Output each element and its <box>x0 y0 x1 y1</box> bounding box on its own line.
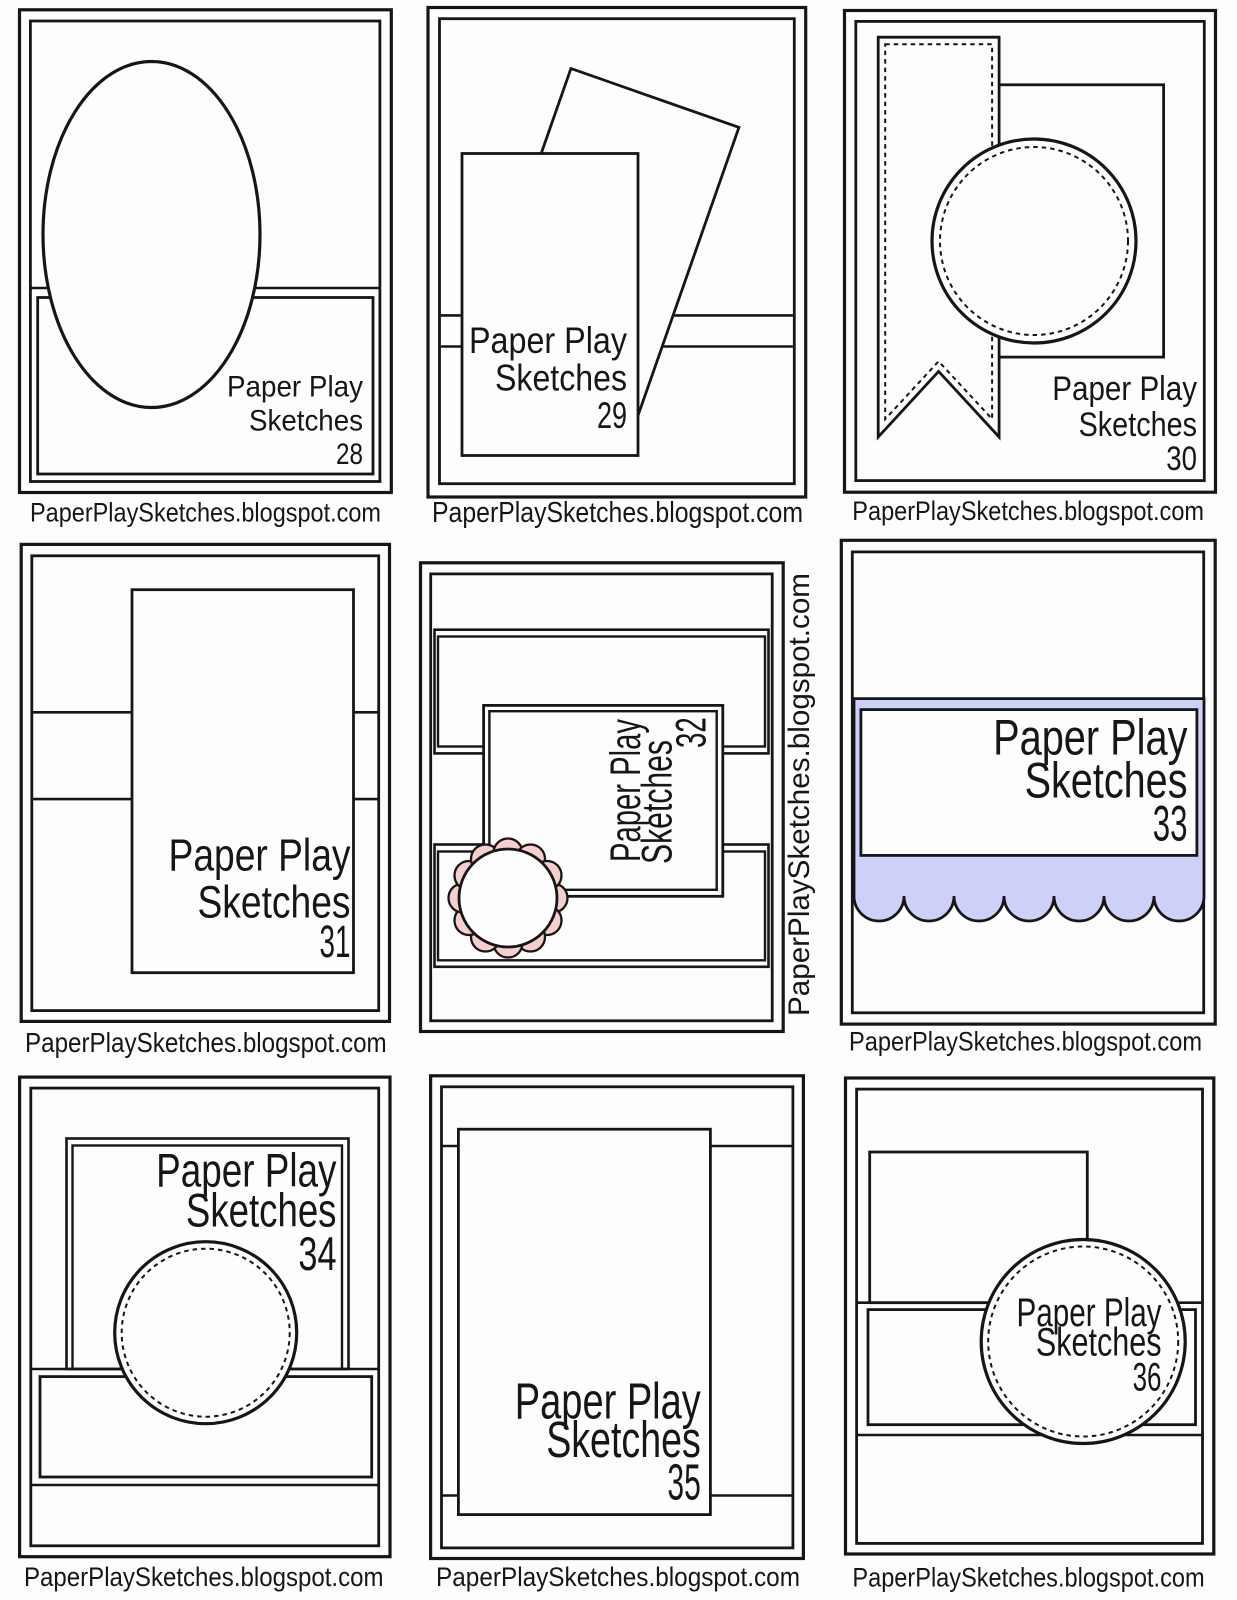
svg-text:28: 28 <box>336 438 363 471</box>
svg-text:PaperPlaySketches.blogspot.com: PaperPlaySketches.blogspot.com <box>24 1562 384 1592</box>
svg-text:31: 31 <box>320 916 351 967</box>
svg-text:PaperPlaySketches.blogspot.com: PaperPlaySketches.blogspot.com <box>852 496 1204 526</box>
svg-text:Paper Play: Paper Play <box>227 371 363 404</box>
svg-text:Sketches: Sketches <box>495 358 627 399</box>
svg-text:PaperPlaySketches.blogspot.com: PaperPlaySketches.blogspot.com <box>852 1563 1204 1593</box>
svg-text:30: 30 <box>1166 440 1197 478</box>
svg-text:Paper Play: Paper Play <box>1052 370 1197 408</box>
svg-text:PaperPlaySketches.blogspot.com: PaperPlaySketches.blogspot.com <box>849 1027 1202 1057</box>
svg-text:36: 36 <box>1133 1356 1162 1400</box>
svg-text:PaperPlaySketches.blogspot.com: PaperPlaySketches.blogspot.com <box>436 1562 800 1592</box>
svg-text:34: 34 <box>298 1227 336 1280</box>
svg-text:PaperPlaySketches.blogspot.com: PaperPlaySketches.blogspot.com <box>432 497 803 529</box>
svg-text:PaperPlaySketches.blogspot.com: PaperPlaySketches.blogspot.com <box>783 573 816 1016</box>
svg-text:32: 32 <box>668 717 716 748</box>
svg-text:Sketches: Sketches <box>1079 406 1197 444</box>
svg-text:33: 33 <box>1153 796 1188 852</box>
svg-text:35: 35 <box>667 1453 700 1510</box>
svg-text:Paper Play: Paper Play <box>469 320 628 361</box>
svg-text:PaperPlaySketches.blogspot.com: PaperPlaySketches.blogspot.com <box>25 1027 387 1058</box>
svg-text:Sketches: Sketches <box>249 405 363 438</box>
svg-text:Paper Play: Paper Play <box>169 830 351 881</box>
svg-text:Sketches: Sketches <box>634 740 682 864</box>
svg-text:PaperPlaySketches.blogspot.com: PaperPlaySketches.blogspot.com <box>30 498 381 528</box>
svg-text:29: 29 <box>597 395 627 436</box>
